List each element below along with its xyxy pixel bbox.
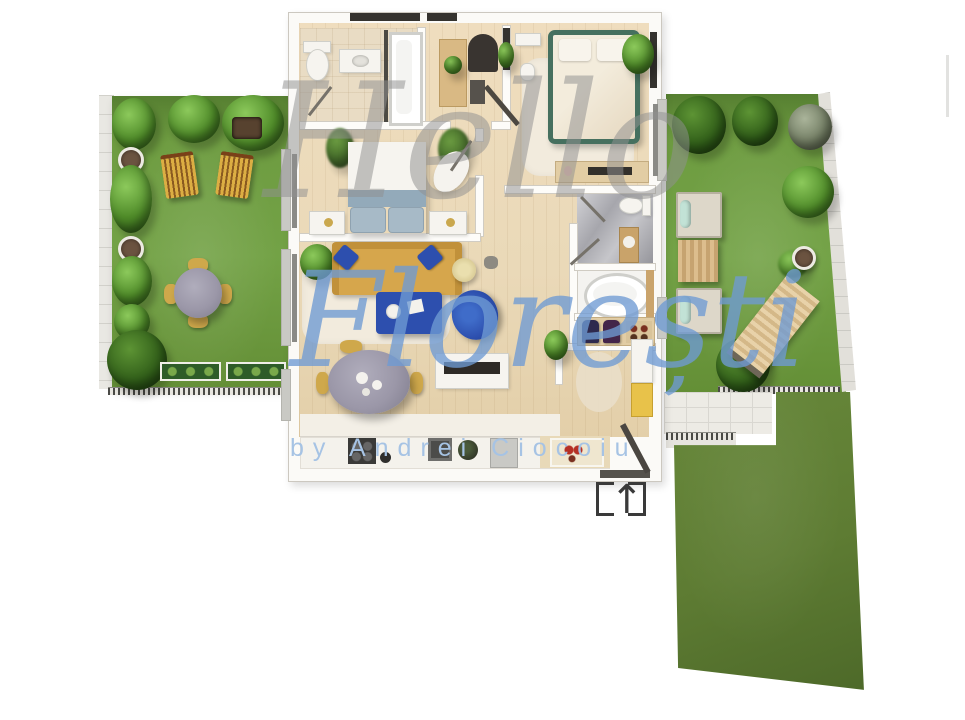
oval-bathtub xyxy=(584,273,650,319)
planter-box xyxy=(160,362,221,381)
indoor-plant xyxy=(300,244,334,280)
indoor-plant xyxy=(498,42,514,68)
sun-lounger xyxy=(676,288,722,334)
interior-wall xyxy=(476,176,483,236)
wall-segment xyxy=(384,30,388,122)
bed-pillow xyxy=(389,208,423,232)
lounger-pillow xyxy=(680,296,691,324)
window-sill xyxy=(282,150,290,230)
toilet xyxy=(620,198,642,213)
hall-mirror xyxy=(468,34,498,72)
plate xyxy=(356,372,368,384)
bed-pillow xyxy=(351,208,385,232)
window-sill xyxy=(658,298,666,338)
bed-blanket xyxy=(348,190,426,207)
patio-step-hatching xyxy=(666,432,736,440)
garden-bush xyxy=(788,104,832,150)
floor-plan-rendering: Hello Florești by Andrei Ciocoiu ↑ xyxy=(0,0,965,720)
bathtub-basin xyxy=(396,40,412,114)
table-lamp xyxy=(446,218,455,227)
bed-blue xyxy=(348,142,426,234)
neighbour-outline xyxy=(946,55,949,117)
garden-bush xyxy=(112,98,156,150)
floor-lamp xyxy=(452,258,476,282)
dining-chair xyxy=(410,372,423,394)
hanging-clothes xyxy=(582,320,599,343)
window-frame xyxy=(292,254,297,342)
shoe-rack xyxy=(552,440,602,465)
entry-rug xyxy=(576,352,622,412)
yellow-cabinet xyxy=(632,384,652,416)
plate xyxy=(386,304,401,319)
interior-wall xyxy=(300,122,450,129)
window-sill xyxy=(658,100,666,180)
interior-wall xyxy=(492,122,510,129)
planter-box xyxy=(226,362,286,381)
garden-lounge-chair xyxy=(160,151,199,199)
interior-wall xyxy=(570,224,577,348)
bed-duvet xyxy=(348,142,426,190)
indoor-plant xyxy=(444,56,462,74)
garden-bush xyxy=(168,95,220,143)
plate xyxy=(372,380,382,390)
garden-bush xyxy=(732,96,778,146)
bed-pillow xyxy=(559,39,591,61)
wall-segment xyxy=(427,13,457,21)
indoor-plant xyxy=(622,34,654,74)
bathtub-basin xyxy=(593,282,637,306)
fruit-bowl xyxy=(458,440,478,460)
slippers xyxy=(521,64,534,80)
kitchen-sink xyxy=(428,438,452,461)
window-sill xyxy=(282,370,290,420)
garden-side-table xyxy=(678,240,718,282)
window-frame xyxy=(653,104,658,176)
interior-wall xyxy=(300,234,480,241)
table-lamp xyxy=(324,218,333,227)
entrance-marker: ↑ xyxy=(596,478,648,526)
pot xyxy=(380,452,391,463)
bedside-tray xyxy=(516,34,540,45)
sun-lounger xyxy=(676,192,722,238)
dresser-decor xyxy=(564,166,572,176)
towel-rack xyxy=(646,270,654,318)
garden-planter xyxy=(232,117,262,139)
patio-tiles xyxy=(664,392,772,434)
sink xyxy=(352,55,369,67)
sink xyxy=(623,236,635,248)
garden-lounge-chair xyxy=(215,151,254,199)
toilet xyxy=(307,50,328,80)
garden-bush xyxy=(112,256,152,306)
plant-pot xyxy=(792,246,816,270)
dishwasher xyxy=(490,438,518,468)
garden-bush xyxy=(672,96,726,154)
stove xyxy=(348,438,376,464)
lounger-pillow xyxy=(680,200,691,228)
garden-bush xyxy=(107,330,167,390)
interior-wall xyxy=(505,186,655,193)
tv xyxy=(444,362,500,374)
plate xyxy=(362,388,370,396)
interior-wall xyxy=(476,129,483,141)
garden-table xyxy=(174,268,222,318)
garden-bush xyxy=(110,165,152,233)
garden-bush xyxy=(782,166,834,218)
hanging-clothes xyxy=(603,320,620,343)
indoor-plant xyxy=(544,330,568,360)
bathtub xyxy=(389,32,423,126)
entrance-up-arrow-icon: ↑ xyxy=(610,480,644,520)
entry-cabinet xyxy=(632,340,652,382)
interior-wall xyxy=(575,264,655,270)
dining-table xyxy=(328,350,410,414)
window-frame xyxy=(292,154,297,228)
window-sill xyxy=(282,250,290,345)
tv-soundbar xyxy=(588,167,632,175)
toilet-tank xyxy=(643,196,650,215)
stool xyxy=(484,256,498,269)
hall-cabinet xyxy=(470,80,485,104)
wall-segment xyxy=(350,13,420,21)
